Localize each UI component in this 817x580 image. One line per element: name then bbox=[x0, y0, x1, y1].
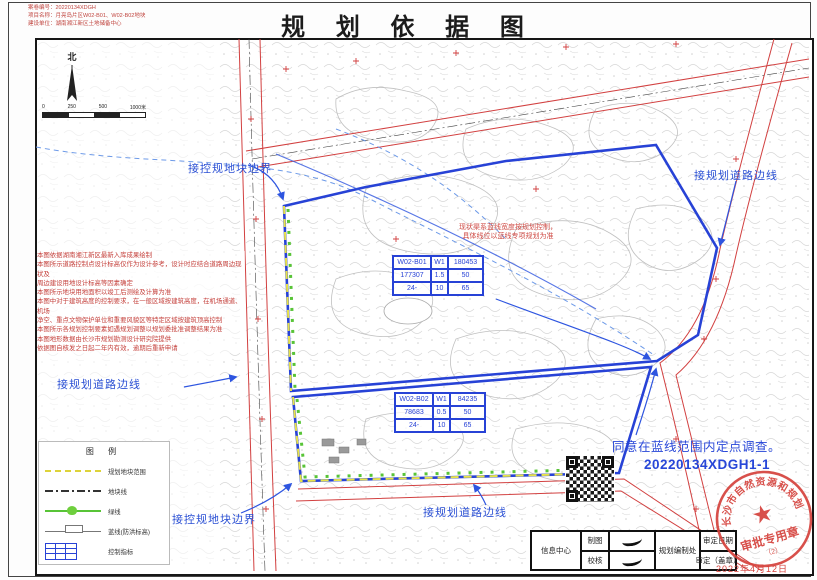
approval-text: 同意在蓝线范围内定点调查。 bbox=[612, 436, 802, 455]
scale-500: 500 bbox=[99, 104, 107, 111]
legend-item: 地块线 bbox=[45, 481, 163, 501]
legend-item: 控制指标 bbox=[45, 541, 163, 561]
label-top-boundary: 接控规地块边界 bbox=[188, 160, 272, 176]
cell: 177307 bbox=[393, 269, 431, 282]
note-line: 净空、重点文物保护单位和重要风貌区等特定区域按建筑顶高控制 bbox=[37, 316, 245, 325]
note-line: 本图所示地块用地面积以竣工后测绘及计算为准 bbox=[37, 288, 245, 297]
parcel-table-1: W02-B01 W1 180453 177307 1.5 50 24- 10 6… bbox=[392, 255, 484, 296]
legend-label: 地块线 bbox=[108, 487, 127, 496]
cell: 65 bbox=[450, 419, 485, 432]
scale-1000: 1000米 bbox=[130, 104, 146, 111]
cell: 78683 bbox=[395, 406, 433, 419]
label-top-right-road: 接规划道路边线 bbox=[694, 167, 778, 183]
draft-label: 制图 bbox=[581, 531, 609, 551]
red-annotation-line1: 现状渠系蓝线宽度按规划控制， bbox=[433, 223, 583, 232]
note-line: 周边建设用地设计标高等因素确定 bbox=[37, 279, 245, 288]
legend-item: 规划地块范围 bbox=[45, 461, 163, 481]
map-notes: 本图依据湖南湘江新区最新入库成果绘制 本图所示道路控制点设计标高仅作为设计参考，… bbox=[37, 251, 245, 353]
cell: 10 bbox=[431, 282, 448, 295]
cell: 0.5 bbox=[433, 406, 450, 419]
legend-label: 控制指标 bbox=[108, 547, 133, 556]
parcel-table-2: W02-B02 W1 84235 78683 0.5 50 24- 10 65 bbox=[394, 392, 486, 433]
yellow-dashed-swatch bbox=[45, 470, 101, 472]
cell: 84235 bbox=[450, 393, 485, 406]
cell: 65 bbox=[448, 282, 483, 295]
check-label: 校核 bbox=[581, 551, 609, 571]
legend-label: 蓝线(防洪标高) bbox=[108, 527, 150, 536]
north-arrow: 北 bbox=[52, 50, 92, 108]
info-center-cell: 信息中心 bbox=[531, 531, 581, 570]
legend-label: 绿线 bbox=[108, 507, 121, 516]
cell: 10 bbox=[433, 419, 450, 432]
drafter-signature bbox=[609, 531, 655, 551]
approval-table: 信息中心 制图 规划编制处 审定日期 校核 审定（盖章） bbox=[530, 530, 737, 571]
label-left-road: 接规划道路边线 bbox=[57, 376, 141, 392]
cell: W02-B01 bbox=[393, 256, 431, 269]
scale-0: 0 bbox=[42, 104, 45, 111]
legend-label: 规划地块范围 bbox=[108, 467, 146, 476]
cell: 180453 bbox=[448, 256, 483, 269]
cell: 1.5 bbox=[431, 269, 448, 282]
page-title: 规 划 依 据 图 bbox=[0, 7, 817, 42]
checker-signature bbox=[609, 551, 655, 571]
dept-cell: 规划编制处 bbox=[655, 531, 700, 570]
legend-item: 蓝线(防洪标高) bbox=[45, 521, 163, 541]
cell: W02-B02 bbox=[395, 393, 433, 406]
approval-annotation: 同意在蓝线范围内定点调查。 20220134XDGH1-1 bbox=[612, 436, 802, 472]
approval-number: 20220134XDGH1-1 bbox=[612, 457, 802, 472]
scale-250: 250 bbox=[68, 104, 76, 111]
compass-icon bbox=[57, 63, 87, 107]
plan-sheet: 案卷编号：20220134XDGH 项目名称：月亮岛片区W02-B01、W02-… bbox=[0, 0, 817, 580]
label-bottom-boundary: 接控规地块边界 bbox=[172, 511, 256, 527]
green-line-swatch bbox=[45, 510, 101, 512]
cell: W1 bbox=[433, 393, 450, 406]
legend: 图 例 规划地块范围 地块线 绿线 蓝线(防洪标高) 控制指标 bbox=[38, 441, 170, 565]
legend-item: 绿线 bbox=[45, 501, 163, 521]
approve-date-label: 审定日期 bbox=[700, 531, 736, 551]
note-line: 本图依据湖南湘江新区最新入库成果绘制 bbox=[37, 251, 245, 260]
cell: 50 bbox=[450, 406, 485, 419]
label-bottom-road: 接规划道路边线 bbox=[423, 504, 507, 520]
elevation-line-swatch bbox=[45, 531, 101, 532]
north-label: 北 bbox=[52, 50, 92, 63]
cell: 24- bbox=[395, 419, 433, 432]
note-line: 本图中对于建筑高度的控制要求，在一般区域按建筑高度，在机场通道、机场 bbox=[37, 297, 245, 316]
cell: 50 bbox=[448, 269, 483, 282]
note-line: 本图所示道路控制点设计标高仅作为设计参考，设计时应结合道路周边现状及 bbox=[37, 260, 245, 279]
note-line: 依据图自核发之日起二年内有效，逾期后重新申请 bbox=[37, 344, 245, 353]
red-annotation-line2: 具体线位以蓝线专项规划为准 bbox=[433, 232, 583, 241]
scale-bar: 0 250 500 1000米 bbox=[42, 104, 146, 118]
cell: W1 bbox=[431, 256, 448, 269]
legend-title: 图 例 bbox=[45, 446, 163, 457]
red-annotation: 现状渠系蓝线宽度按规划控制， 具体线位以蓝线专项规划为准 bbox=[433, 223, 583, 241]
cell: 24- bbox=[393, 282, 431, 295]
note-line: 本图地形数据由长沙市规划勘测设计研究院提供 bbox=[37, 335, 245, 344]
dashdot-swatch bbox=[45, 490, 101, 492]
indicator-table-swatch bbox=[45, 543, 77, 560]
note-line: 本图所示各规划控制要素如遇规划调整以规划委批准调整结果为准 bbox=[37, 325, 245, 334]
stamp-date: 2022年4月12日 bbox=[716, 562, 788, 575]
qr-code bbox=[566, 456, 614, 502]
